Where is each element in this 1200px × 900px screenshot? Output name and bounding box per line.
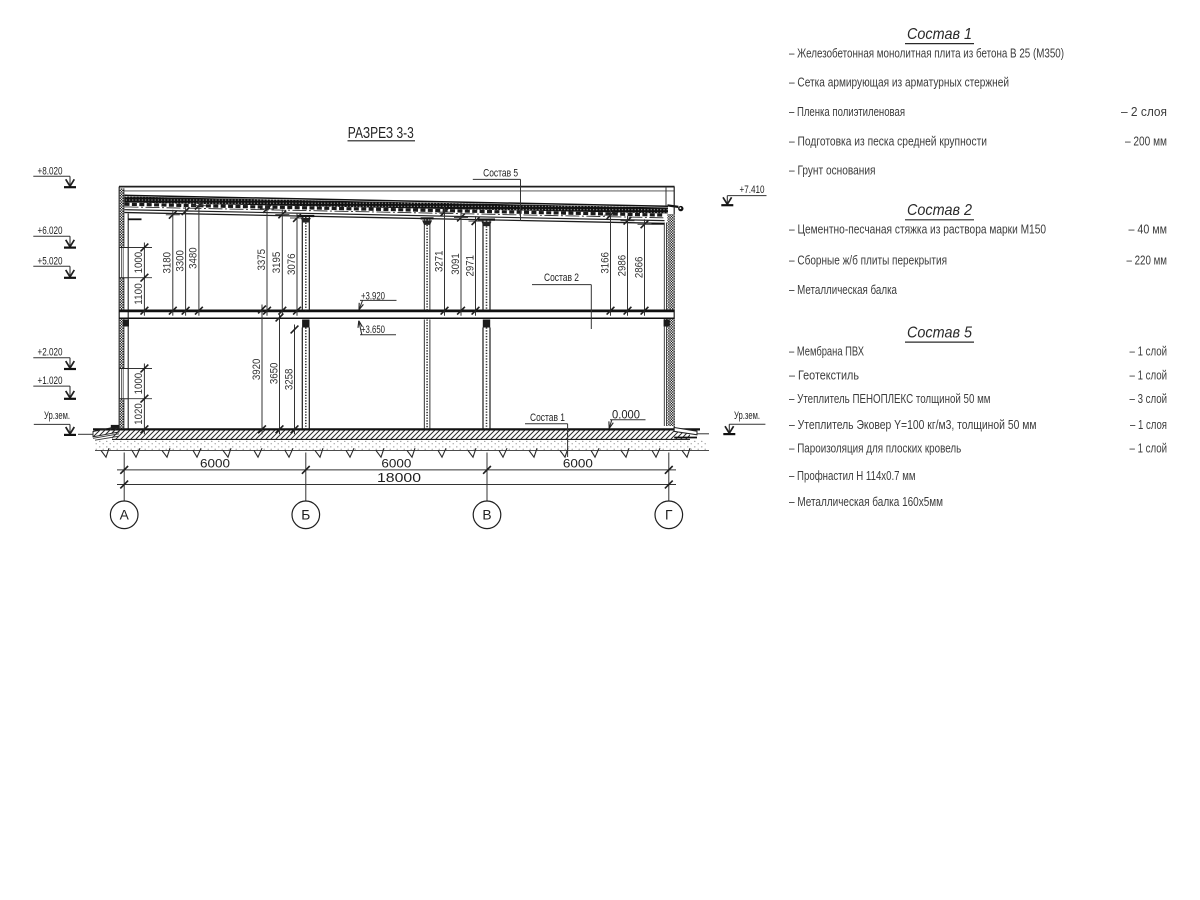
svg-text:Состав 2: Состав 2 (544, 272, 579, 284)
svg-text:3091: 3091 (450, 253, 462, 275)
svg-text:– Сборные ж/б плиты перекрытия: – Сборные ж/б плиты перекрытия (789, 252, 947, 267)
svg-text:6000: 6000 (200, 456, 230, 470)
svg-text:3180: 3180 (162, 252, 174, 274)
svg-text:Ур.зем.: Ур.зем. (44, 410, 70, 422)
svg-text:Состав 1: Состав 1 (907, 26, 972, 43)
svg-text:– 40 мм: – 40 мм (1129, 221, 1168, 236)
svg-text:– Сетка армирующая из арматурн: – Сетка армирующая из арматурных стержне… (789, 75, 1009, 90)
svg-text:– Металлическая балка: – Металлическая балка (789, 282, 898, 297)
svg-text:– Мембрана ПВХ: – Мембрана ПВХ (789, 344, 864, 359)
svg-text:Состав 2: Состав 2 (907, 202, 972, 219)
svg-text:1000: 1000 (133, 252, 145, 274)
svg-text:+8.020: +8.020 (38, 165, 63, 177)
svg-text:Ур.зем.: Ур.зем. (734, 410, 760, 422)
svg-text:1020: 1020 (133, 403, 145, 425)
svg-text:+5.020: +5.020 (38, 255, 63, 267)
svg-text:– Грунт основания: – Грунт основания (789, 163, 876, 178)
svg-text:6000: 6000 (381, 456, 411, 470)
svg-text:0.000: 0.000 (612, 407, 640, 421)
svg-text:2866: 2866 (633, 257, 645, 279)
svg-text:Г: Г (665, 508, 673, 523)
svg-text:2971: 2971 (464, 255, 476, 277)
svg-text:– Утеплитель ПЕНОПЛЕКС толщино: – Утеплитель ПЕНОПЛЕКС толщиной 50 мм (789, 391, 991, 406)
svg-text:3076: 3076 (286, 253, 298, 275)
svg-text:3480: 3480 (188, 247, 200, 269)
svg-text:– Пленка полиэтиленовая: – Пленка полиэтиленовая (789, 104, 905, 119)
svg-text:3258: 3258 (283, 369, 295, 391)
svg-text:– Пароизоляция для плоских кро: – Пароизоляция для плоских кровель (789, 441, 962, 456)
svg-text:– 200 мм: – 200 мм (1125, 133, 1167, 148)
svg-text:Состав 5: Состав 5 (907, 324, 972, 341)
svg-text:– Цементно-песчаная стяжка из: – Цементно-песчаная стяжка из раствора м… (789, 221, 1046, 236)
svg-text:2986: 2986 (616, 255, 628, 277)
svg-text:– Железобетонная монолитная п: – Железобетонная монолитная плита из бет… (789, 45, 1064, 60)
svg-text:+6.020: +6.020 (38, 225, 63, 237)
svg-text:В: В (482, 508, 491, 523)
svg-text:6000: 6000 (563, 456, 593, 470)
svg-text:3166: 3166 (599, 252, 611, 274)
svg-text:– 1 слой: – 1 слой (1130, 344, 1168, 359)
svg-text:– 220 мм: – 220 мм (1127, 252, 1168, 267)
svg-text:– Геотекстиль: – Геотекстиль (789, 367, 859, 382)
svg-text:Состав 1: Состав 1 (530, 412, 565, 424)
svg-text:1100: 1100 (133, 283, 145, 305)
svg-text:– 3 слой: – 3 слой (1130, 391, 1168, 406)
svg-text:+1.020: +1.020 (38, 375, 63, 387)
svg-text:РАЗРЕЗ 3-3: РАЗРЕЗ 3-3 (348, 125, 414, 142)
svg-text:– Металлическая балка 160х5мм: – Металлическая балка 160х5мм (789, 494, 943, 509)
svg-text:– 1 слой: – 1 слой (1130, 367, 1168, 382)
svg-text:+7.410: +7.410 (740, 184, 765, 196)
svg-text:3300: 3300 (174, 250, 186, 272)
svg-text:А: А (120, 508, 130, 523)
svg-text:– Утеплитель Эковер Y=100 кг/м: – Утеплитель Эковер Y=100 кг/м3, толщино… (789, 417, 1037, 432)
svg-text:3195: 3195 (271, 252, 283, 274)
svg-text:3920: 3920 (251, 359, 263, 381)
svg-text:1000: 1000 (133, 373, 145, 395)
svg-text:Б: Б (301, 508, 310, 523)
svg-text:– 1 слоя: – 1 слоя (1130, 417, 1167, 432)
svg-text:3650: 3650 (268, 363, 280, 385)
svg-text:– 1 слой: – 1 слой (1130, 441, 1168, 456)
svg-text:– Подготовка из песка средней: – Подготовка из песка средней крупности (789, 133, 987, 148)
svg-text:18000: 18000 (377, 471, 421, 485)
svg-text:3271: 3271 (433, 250, 445, 272)
svg-text:Состав 5: Состав 5 (483, 168, 518, 180)
svg-text:+2.020: +2.020 (38, 347, 63, 359)
svg-text:– Профнастил Н 114х0.7 мм: – Профнастил Н 114х0.7 мм (789, 468, 916, 483)
svg-text:– 2 слоя: – 2 слоя (1121, 104, 1167, 119)
svg-text:3375: 3375 (256, 249, 268, 271)
